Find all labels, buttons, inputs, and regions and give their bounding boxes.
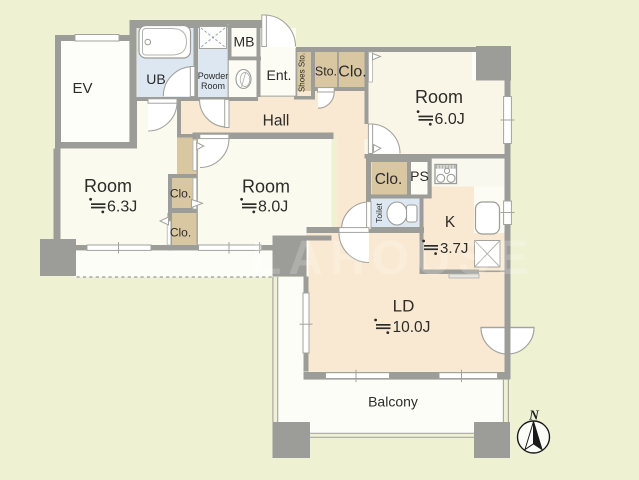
svg-text:LAHOUSE: LAHOUSE	[252, 232, 536, 285]
svg-text:8.0J: 8.0J	[258, 199, 288, 216]
svg-text:Toilet: Toilet	[374, 202, 384, 222]
svg-text:6.0J: 6.0J	[435, 111, 465, 128]
svg-text:10.0J: 10.0J	[393, 319, 431, 336]
svg-text:Clo.: Clo.	[170, 187, 191, 201]
svg-text:Room: Room	[84, 176, 132, 196]
svg-text:3.7J: 3.7J	[440, 240, 468, 257]
svg-text:Clo.: Clo.	[375, 171, 403, 188]
svg-text:EV: EV	[72, 80, 92, 97]
svg-text:Room: Room	[415, 87, 463, 107]
svg-text:Balcony: Balcony	[368, 394, 418, 410]
svg-text:LD: LD	[393, 297, 415, 316]
svg-text:K: K	[445, 214, 456, 231]
svg-text:MB: MB	[234, 34, 255, 50]
svg-text:Room: Room	[242, 177, 290, 197]
svg-text:Clo.: Clo.	[170, 226, 191, 240]
svg-text:Sto.: Sto.	[315, 65, 337, 79]
svg-text:PS: PS	[410, 168, 429, 184]
svg-text:Hall: Hall	[263, 113, 290, 130]
svg-text:UB: UB	[146, 71, 165, 87]
svg-text:N: N	[528, 408, 540, 423]
svg-text:6.3J: 6.3J	[107, 199, 137, 216]
svg-text:Clo.: Clo.	[338, 64, 366, 81]
svg-text:Shoes Sto.: Shoes Sto.	[298, 53, 307, 92]
svg-text:Powder: Powder	[198, 71, 229, 81]
svg-text:Ent.: Ent.	[267, 67, 292, 83]
svg-text:Room: Room	[201, 81, 225, 91]
